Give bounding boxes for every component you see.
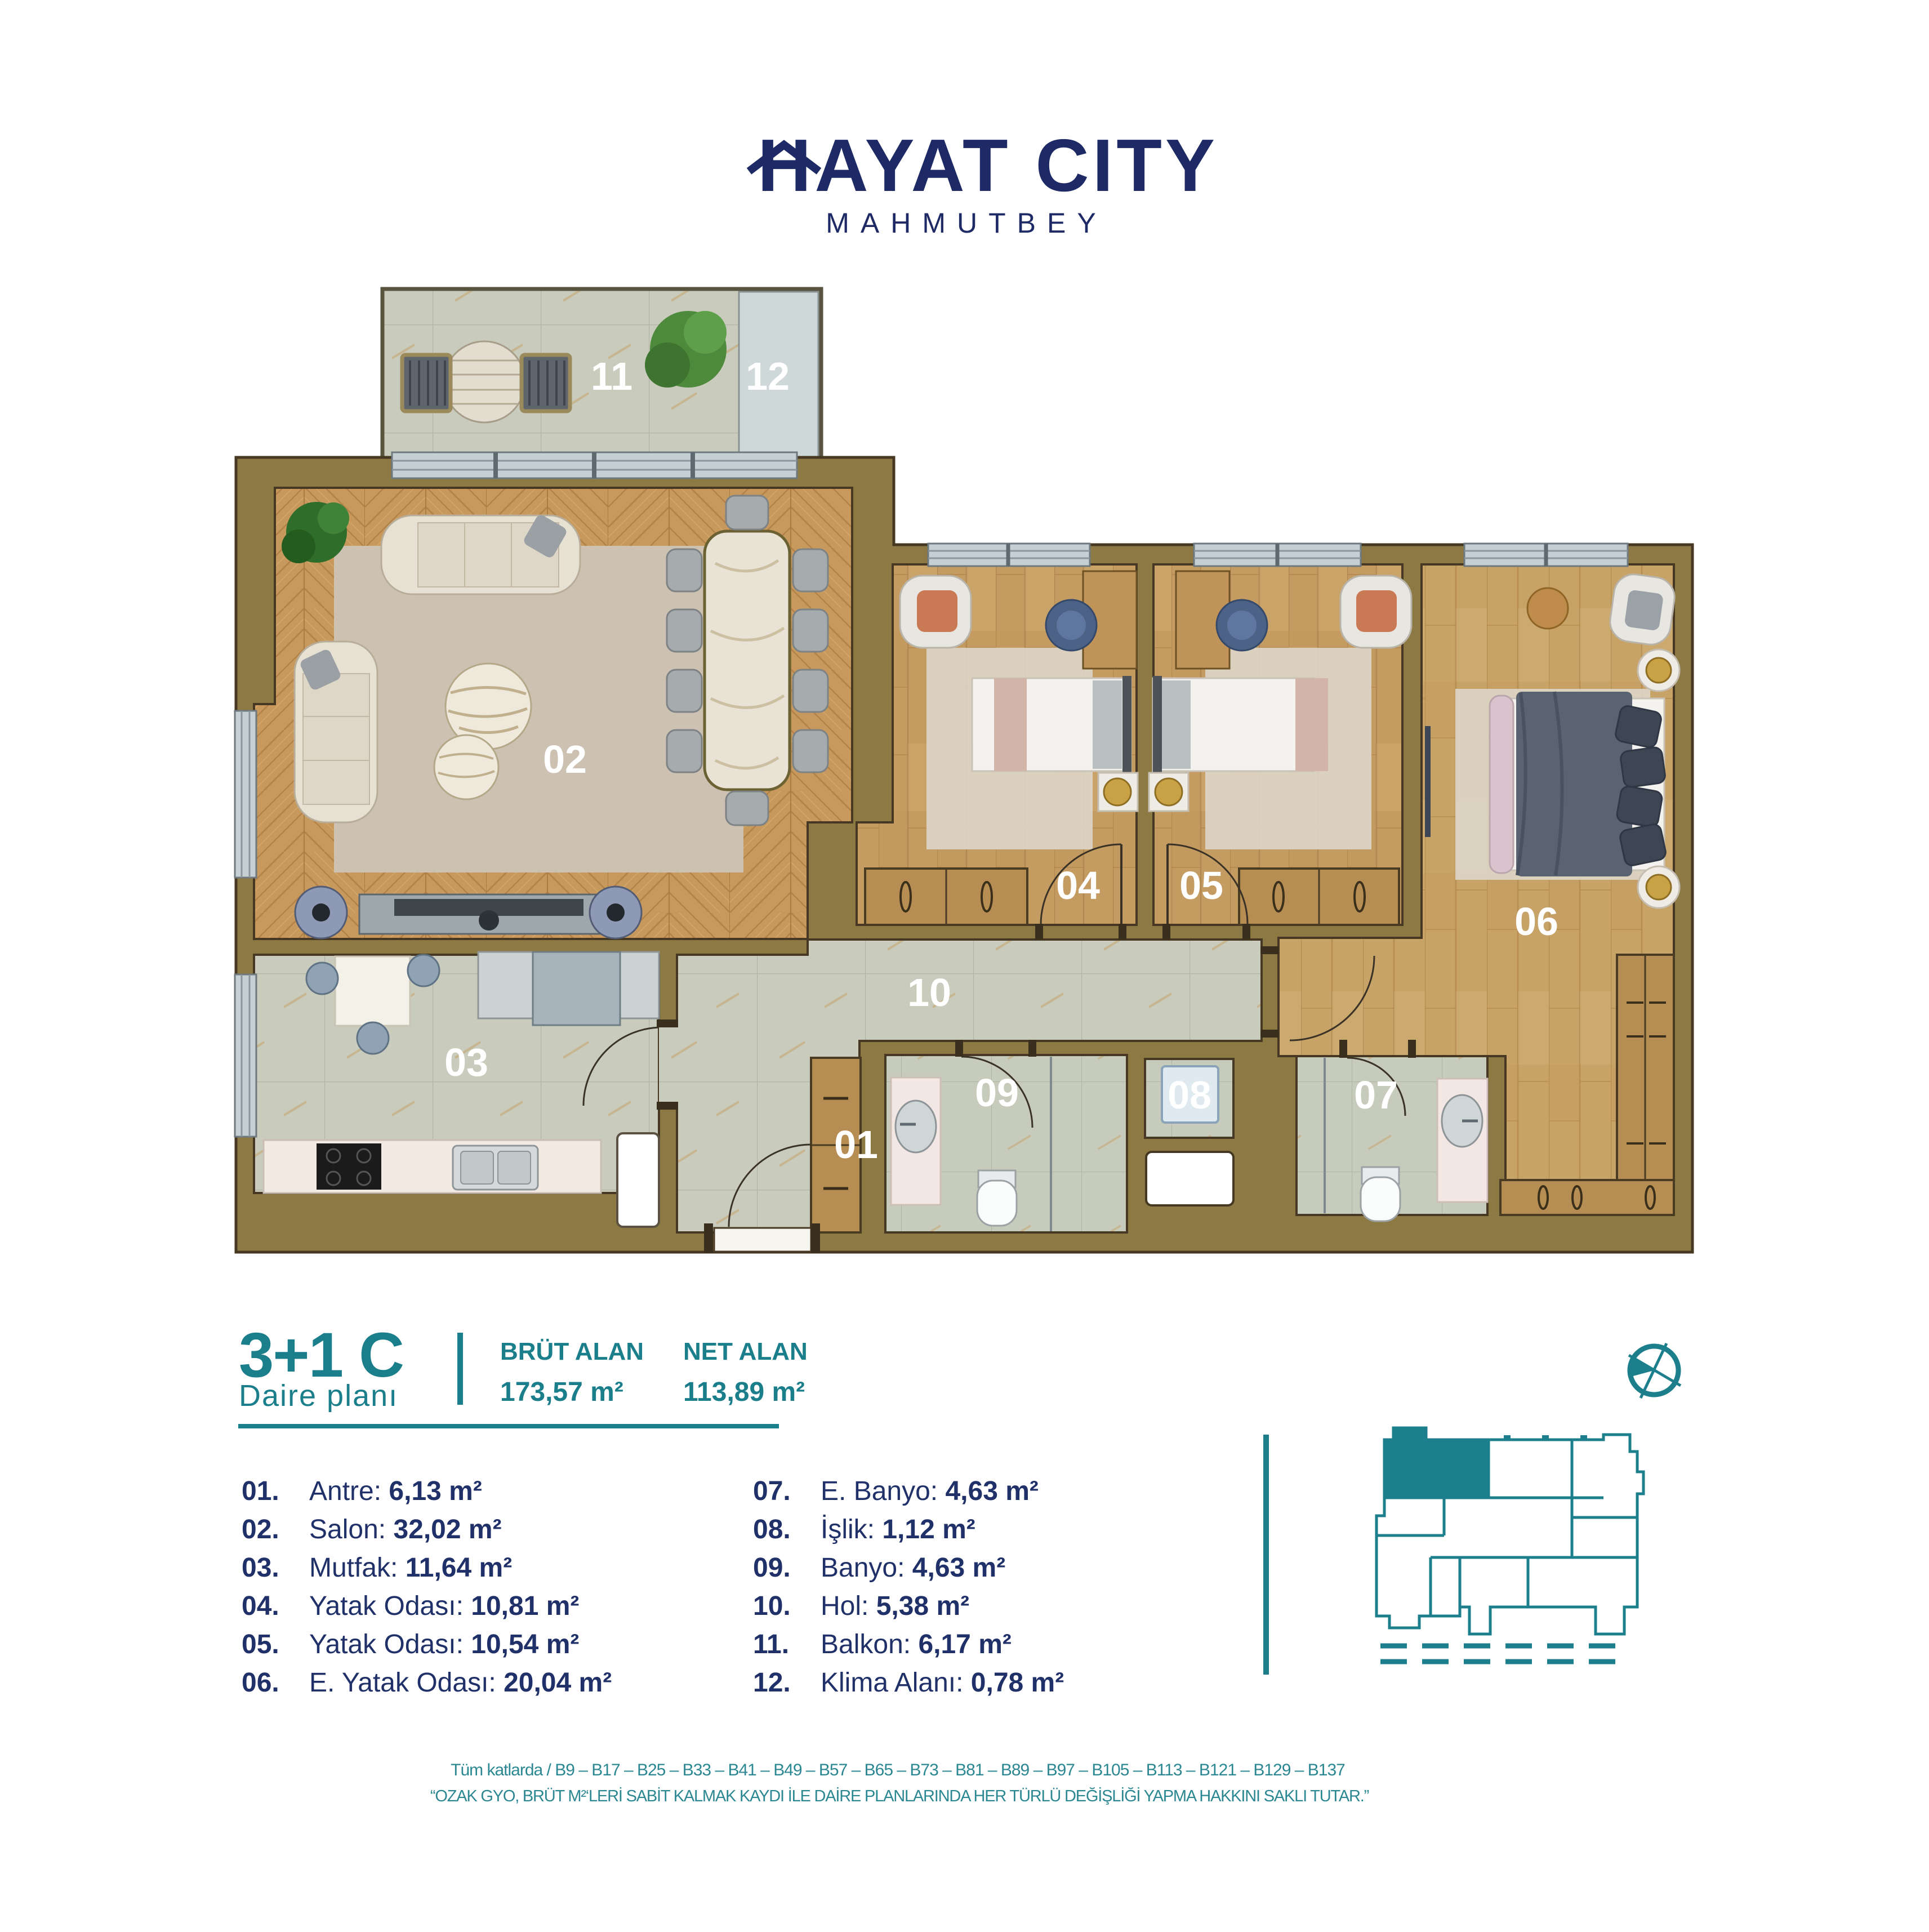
svg-text:Antre: 6,13 m²: Antre: 6,13 m² xyxy=(309,1476,482,1506)
svg-text:Mutfak: 11,64 m²: Mutfak: 11,64 m² xyxy=(309,1553,512,1583)
svg-text:09.: 09. xyxy=(753,1553,791,1583)
svg-text:07.: 07. xyxy=(753,1476,791,1506)
svg-text:01: 01 xyxy=(834,1123,878,1167)
svg-text:“OZAK GYO, BRÜT M²‘LERİ SABİT: “OZAK GYO, BRÜT M²‘LERİ SABİT KALMAK KAY… xyxy=(430,1787,1369,1805)
svg-text:Hol: 5,38 m²: Hol: 5,38 m² xyxy=(821,1591,969,1621)
svg-text:Salon: 32,02 m²: Salon: 32,02 m² xyxy=(309,1515,502,1544)
svg-text:12.: 12. xyxy=(753,1668,791,1698)
svg-text:Balkon: 6,17 m²: Balkon: 6,17 m² xyxy=(821,1630,1012,1659)
svg-text:10.: 10. xyxy=(753,1591,791,1621)
svg-text:11: 11 xyxy=(591,354,632,398)
svg-text:05.: 05. xyxy=(242,1630,279,1659)
svg-text:02.: 02. xyxy=(242,1515,279,1544)
svg-text:09: 09 xyxy=(975,1071,1019,1115)
svg-text:HAYAT CITY: HAYAT CITY xyxy=(758,124,1218,207)
svg-text:01.: 01. xyxy=(242,1476,279,1506)
svg-text:113,89 m²: 113,89 m² xyxy=(683,1377,805,1407)
svg-text:08: 08 xyxy=(1168,1073,1211,1117)
svg-text:Daire planı: Daire planı xyxy=(239,1379,398,1413)
svg-text:04.: 04. xyxy=(242,1591,279,1621)
svg-text:NET ALAN: NET ALAN xyxy=(683,1338,808,1365)
svg-text:04: 04 xyxy=(1056,863,1100,907)
svg-text:07: 07 xyxy=(1354,1073,1398,1117)
svg-text:Klima Alanı: 0,78 m²: Klima Alanı: 0,78 m² xyxy=(821,1668,1064,1698)
svg-text:E. Yatak Odası: 20,04 m²: E. Yatak Odası: 20,04 m² xyxy=(309,1668,612,1698)
svg-text:11.: 11. xyxy=(753,1630,789,1659)
svg-text:Banyo: 4,63 m²: Banyo: 4,63 m² xyxy=(821,1553,1005,1583)
svg-text:06.: 06. xyxy=(242,1668,279,1698)
svg-text:Yatak Odası: 10,81 m²: Yatak Odası: 10,81 m² xyxy=(309,1591,579,1621)
svg-text:10: 10 xyxy=(907,971,951,1014)
svg-text:08.: 08. xyxy=(753,1515,791,1544)
svg-text:MAHMUTBEY: MAHMUTBEY xyxy=(826,207,1107,239)
svg-text:173,57 m²: 173,57 m² xyxy=(500,1377,623,1407)
svg-text:03: 03 xyxy=(444,1040,488,1084)
svg-text:05: 05 xyxy=(1179,863,1223,907)
svg-text:06: 06 xyxy=(1514,900,1558,943)
svg-text:İşlik: 1,12 m²: İşlik: 1,12 m² xyxy=(821,1515,975,1544)
svg-text:12: 12 xyxy=(746,354,790,398)
svg-text:Tüm katlarda / B9 – B17 – B25: Tüm katlarda / B9 – B17 – B25 – B33 – B4… xyxy=(451,1761,1345,1779)
svg-text:Yatak Odası: 10,54 m²: Yatak Odası: 10,54 m² xyxy=(309,1630,579,1659)
svg-text:E. Banyo: 4,63 m²: E. Banyo: 4,63 m² xyxy=(821,1476,1039,1506)
svg-text:03.: 03. xyxy=(242,1553,279,1583)
svg-text:BRÜT ALAN: BRÜT ALAN xyxy=(500,1338,644,1365)
svg-text:02: 02 xyxy=(543,737,587,781)
